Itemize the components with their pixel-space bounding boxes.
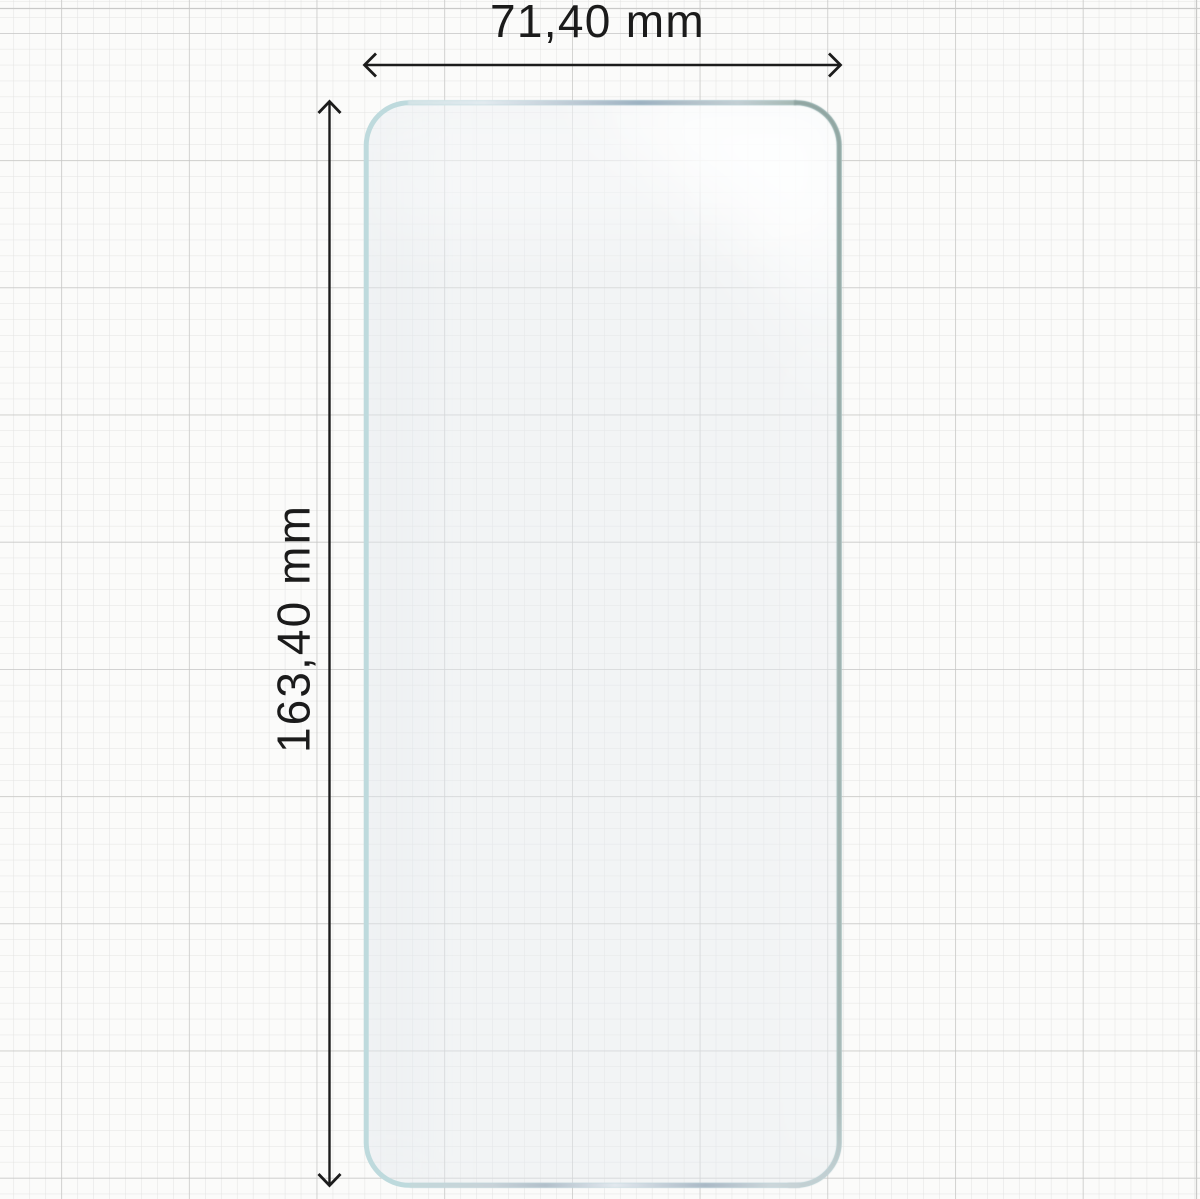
svg-text:163,40 mm: 163,40 mm [268,504,320,753]
svg-text:71,40 mm: 71,40 mm [490,0,705,47]
